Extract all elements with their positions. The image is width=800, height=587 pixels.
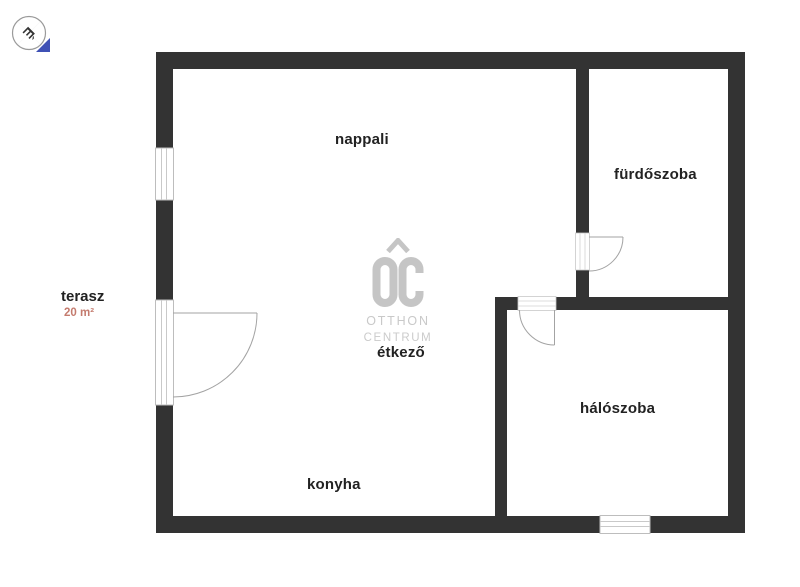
window-balcony-door (156, 300, 174, 405)
terrace-label: terasz (61, 288, 104, 305)
wall-top (156, 52, 745, 69)
window-bedroom-bottom (600, 516, 650, 534)
window-living-left (156, 148, 174, 200)
floorplan-canvas: É (0, 0, 800, 587)
room-label-living: nappali (335, 131, 389, 149)
wall-left-middle (156, 200, 173, 300)
wall-bedroom-top-left (495, 297, 518, 310)
room-label-bathroom: fürdőszoba (614, 166, 697, 184)
wall-left-lower (156, 405, 173, 533)
brand-name-line2: CENTRUM (364, 332, 433, 344)
room-label-kitchen: konyha (307, 476, 361, 494)
wall-bathroom-upper (576, 69, 589, 233)
brand-name-line1: OTTHON (366, 314, 430, 328)
c-letter-gap (415, 273, 424, 291)
brand-initials-icon (372, 257, 424, 307)
roof-chevron-icon (386, 238, 410, 253)
bathroom-door-swing (589, 237, 623, 271)
room-label-bedroom: hálószoba (580, 400, 655, 418)
walls (156, 52, 745, 533)
wall-right (728, 52, 745, 533)
bedroom-door-swing (520, 310, 555, 345)
terrace-area-value: 20 m² (64, 307, 94, 319)
wall-bedroom-top-right (556, 297, 745, 310)
wall-left-upper (156, 52, 173, 148)
brand-watermark: OTTHON CENTRUM (358, 238, 438, 344)
bedroom-door-jamb (518, 297, 556, 311)
bathroom-door-jamb (576, 233, 590, 270)
wall-bottom (156, 516, 745, 533)
balcony-door-swing (173, 313, 257, 397)
wall-bedroom-left (495, 310, 507, 516)
room-label-dining: étkező (377, 344, 425, 362)
